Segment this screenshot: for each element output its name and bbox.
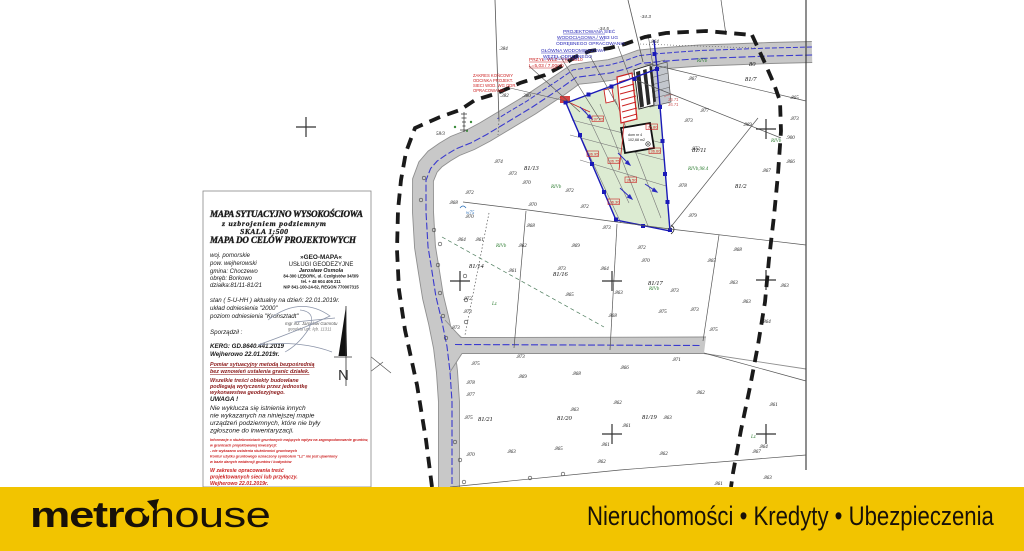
svg-text:w75: w75: [466, 211, 475, 216]
svg-text:.872: .872: [580, 205, 589, 210]
svg-text:.871: .871: [672, 358, 681, 363]
svg-text:81/11: 81/11: [692, 147, 706, 154]
svg-text:.868: .868: [449, 201, 458, 206]
svg-text:.868: .868: [526, 224, 535, 229]
svg-text:.866: .866: [786, 160, 795, 165]
svg-text:OPRACOWANIA: OPRACOWANIA: [473, 88, 505, 93]
svg-text:.875: .875: [464, 416, 473, 421]
svg-text:.865: .865: [790, 96, 799, 101]
svg-text:Informacje o służebnościach gr: Informacje o służebnościach gruntowych m…: [210, 438, 368, 442]
svg-text:stan ( 5-U-HH ) aktualny na dz: stan ( 5-U-HH ) aktualny na dzień: 22.01…: [210, 297, 340, 304]
svg-text:.863: .863: [763, 476, 772, 481]
svg-text:.877: .877: [466, 393, 475, 398]
svg-text:81/19: 81/19: [642, 414, 658, 421]
svg-text:81/21: 81/21: [478, 416, 493, 423]
svg-text:.873: .873: [602, 226, 611, 231]
svg-text:układ odniesienia "2000": układ odniesienia "2000": [210, 305, 278, 312]
svg-text:obręb: Borkowo: obręb: Borkowo: [210, 276, 253, 282]
svg-text:w granicach projektowanej inwe: w granicach projektowanej inwestycji:: [210, 444, 278, 448]
svg-text:36.80: 36.80: [648, 125, 659, 130]
svg-text:.868: .868: [608, 314, 617, 319]
svg-text:-34.3: -34.3: [640, 14, 651, 20]
svg-text:.873: .873: [790, 117, 799, 122]
svg-text:.870: .870: [522, 181, 531, 186]
svg-text:.869: .869: [571, 244, 580, 249]
svg-text:.862: .862: [613, 401, 622, 406]
svg-text:gmina: Choczewo: gmina: Choczewo: [210, 269, 258, 275]
svg-text:.870: .870: [528, 203, 537, 208]
svg-text:ODRĘBNEGO OPRACOWANIA: ODRĘBNEGO OPRACOWANIA: [556, 41, 626, 47]
svg-text:- nie wykazano ustalenia służe: - nie wykazano ustalenia służebności gru…: [210, 449, 298, 453]
svg-text:.861: .861: [769, 403, 778, 408]
svg-text:bez wznowień ustalenia granic: bez wznowień ustalenia granic działek.: [210, 369, 310, 375]
svg-text:36.95: 36.95: [589, 152, 600, 157]
svg-text:Lz: Lz: [750, 435, 756, 440]
svg-text:36.71: 36.71: [668, 102, 678, 107]
svg-text:.863: .863: [507, 450, 516, 455]
svg-text:.873: .873: [690, 308, 699, 313]
svg-text:poziom odniesienia "Kronsztadt: poziom odniesienia "Kronsztadt": [209, 313, 299, 320]
svg-text:MAPA SYTUACYJNO WYSOKOŚCIOWA: MAPA SYTUACYJNO WYSOKOŚCIOWA: [209, 209, 363, 219]
svg-text:.872: .872: [565, 189, 574, 194]
svg-text:.870: .870: [641, 259, 650, 264]
svg-text:.862: .862: [696, 391, 705, 396]
svg-text:84-300 LĘBORK, ul. Czołgistów: 84-300 LĘBORK, ul. Czołgistów 34/3/9: [283, 274, 359, 279]
svg-text:tel. + 48 604 406 211: tel. + 48 604 406 211: [301, 279, 341, 284]
svg-text:.869: .869: [518, 375, 527, 380]
svg-text:81/17: 81/17: [648, 280, 664, 287]
svg-text:81/20: 81/20: [557, 415, 573, 422]
svg-text:.865: .865: [554, 447, 563, 452]
svg-text:.867: .867: [762, 169, 771, 174]
svg-text:.873: .873: [670, 289, 679, 294]
svg-text:urządzeń podziemnych, które ni: urządzeń podziemnych, które nie były: [210, 420, 321, 427]
svg-text:.863: .863: [570, 408, 579, 413]
svg-text:NIP 841-100-24-62, REGON 77000: NIP 841-100-24-62, REGON 770007315: [283, 285, 359, 290]
svg-text:Nie wyklucza się istnienia inn: Nie wyklucza się istnienia innych: [210, 405, 306, 412]
svg-text:.863: .863: [780, 284, 789, 289]
svg-text:.863: .863: [614, 291, 623, 296]
svg-text:woj. pomorskie: woj. pomorskie: [210, 253, 251, 259]
svg-text:RIVb: RIVb: [696, 59, 708, 64]
svg-text:.867: .867: [752, 450, 761, 455]
svg-text:RIVb: RIVb: [495, 244, 507, 249]
svg-text:37.05: 37.05: [594, 117, 605, 122]
svg-text:»GEO-MAPA«: »GEO-MAPA«: [300, 254, 342, 261]
svg-text:.865: .865: [707, 259, 716, 264]
svg-text:MAPA DO CELÓW PROJEKTOWYCH: MAPA DO CELÓW PROJEKTOWYCH: [209, 235, 357, 245]
svg-text:.861: .861: [601, 443, 610, 448]
svg-text:36.60: 36.60: [651, 149, 662, 154]
svg-text:.867: .867: [688, 77, 697, 82]
svg-text:81/13: 81/13: [524, 165, 540, 172]
svg-text:.863: .863: [663, 416, 672, 421]
svg-text:.866: .866: [620, 366, 629, 371]
svg-text:w bazie danych ewidencji grunt: w bazie danych ewidencji gruntów i budyn…: [210, 460, 293, 464]
svg-text:.873: .873: [451, 326, 460, 331]
svg-text:Pomiar sytuacyjny metodą bezpo: Pomiar sytuacyjny metodą bezpośrednią: [210, 362, 315, 368]
svg-text:.869: .869: [743, 123, 752, 128]
svg-text:nie wykazanych na niniejszej m: nie wykazanych na niniejszej mapie: [210, 413, 315, 420]
svg-text:.875: .875: [658, 310, 667, 315]
svg-text:.877: .877: [700, 109, 709, 114]
svg-text:58/3: 58/3: [436, 132, 445, 137]
svg-text:.868: .868: [572, 372, 581, 377]
svg-text:RIVb: RIVb: [648, 287, 660, 292]
svg-text:.868: .868: [733, 248, 742, 253]
svg-text:.900: .900: [786, 136, 795, 141]
svg-text:.862: .862: [597, 460, 606, 465]
svg-text:.864: .864: [650, 40, 659, 45]
svg-text:projektowanych sieci lub przył: projektowanych sieci lub przyłączy.: [209, 475, 298, 481]
svg-text:RIVb: RIVb: [550, 185, 562, 190]
svg-text:.864: .864: [600, 267, 609, 272]
svg-text:.875: .875: [471, 362, 480, 367]
svg-text:.864: .864: [762, 320, 771, 325]
svg-text:dom nr 4: dom nr 4: [628, 133, 642, 137]
svg-text:.878: .878: [678, 184, 687, 189]
svg-text:W zakresie opracowania treść: W zakresie opracowania treść: [210, 468, 284, 474]
svg-text:.873: .873: [516, 355, 525, 360]
svg-text:.863: .863: [742, 300, 751, 305]
svg-text:80: 80: [749, 61, 756, 68]
svg-text:36.75: 36.75: [610, 159, 621, 164]
svg-text:.873: .873: [463, 310, 472, 315]
svg-text:.873: .873: [684, 119, 693, 124]
svg-text:.863: .863: [729, 281, 738, 286]
svg-text:81/7: 81/7: [745, 76, 757, 83]
svg-text:81/16: 81/16: [553, 271, 569, 278]
svg-text:działka:81/11-81/21: działka:81/11-81/21: [210, 283, 262, 289]
svg-text:.864: .864: [457, 238, 466, 243]
svg-text:102,68 m2: 102,68 m2: [628, 138, 645, 142]
svg-text:36.50: 36.50: [627, 178, 638, 183]
svg-text:.382: .382: [500, 94, 509, 99]
svg-text:.862: .862: [659, 452, 668, 457]
svg-text:-34.5: -34.5: [598, 26, 609, 32]
svg-text:.861: .861: [508, 269, 517, 274]
svg-text:.878: .878: [466, 381, 475, 386]
svg-text:.384: .384: [499, 47, 508, 52]
svg-text:pow. wejherowski: pow. wejherowski: [209, 261, 257, 267]
svg-text:.872: .872: [463, 297, 472, 302]
svg-text:.865: .865: [565, 293, 574, 298]
svg-text:81/2: 81/2: [735, 183, 747, 190]
svg-text:.879: .879: [688, 214, 697, 219]
svg-text:.872: .872: [637, 246, 646, 251]
svg-text:RIVb,98.4: RIVb,98.4: [687, 167, 709, 172]
svg-text:Kontur użytku gruntowego oznac: Kontur użytku gruntowego oznaczony symbo…: [210, 455, 338, 459]
svg-text:36.30: 36.30: [610, 200, 621, 205]
svg-text:Sporządził :: Sporządził :: [210, 329, 243, 336]
svg-text:Wejherowo 22.01.2019r.: Wejherowo 22.01.2019r.: [210, 351, 280, 358]
svg-text:N: N: [338, 367, 349, 384]
svg-text:.862: .862: [518, 244, 527, 249]
svg-text:.874: .874: [494, 160, 503, 165]
svg-text:.873: .873: [508, 172, 517, 177]
svg-text:.861: .861: [475, 238, 484, 243]
svg-text:81/14: 81/14: [469, 263, 485, 270]
svg-text:.875: .875: [709, 328, 718, 333]
svg-text:.380: .380: [522, 94, 531, 99]
svg-text:.872: .872: [465, 191, 474, 196]
svg-text:Lz: Lz: [491, 302, 497, 307]
svg-text:zgłoszone do inwentaryzacji.: zgłoszone do inwentaryzacji.: [209, 428, 294, 435]
svg-text:.861: .861: [622, 424, 631, 429]
svg-text:UWAGA !: UWAGA !: [210, 396, 239, 403]
svg-text:RIVb: RIVb: [770, 139, 782, 144]
